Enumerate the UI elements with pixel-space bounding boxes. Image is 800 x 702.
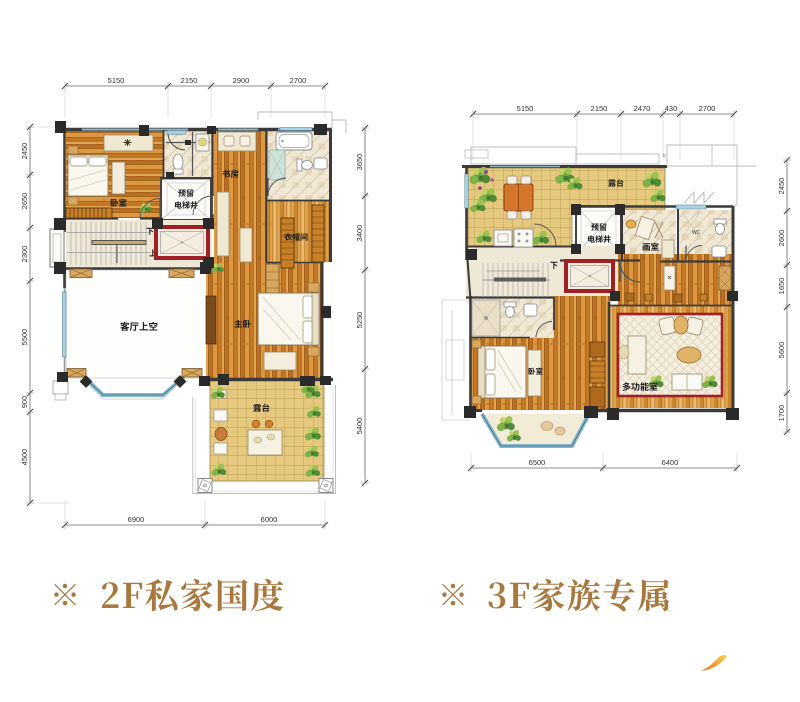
svg-text:6000: 6000 (261, 515, 278, 524)
svg-text:430: 430 (665, 104, 678, 113)
svg-text:2700: 2700 (290, 76, 307, 85)
svg-text:2600: 2600 (777, 230, 786, 247)
svg-text:4500: 4500 (20, 449, 29, 466)
svg-text:1650: 1650 (777, 278, 786, 295)
svg-text:2150: 2150 (591, 104, 608, 113)
svg-text:5500: 5500 (20, 329, 29, 346)
svg-text:6400: 6400 (662, 458, 679, 467)
svg-text:2150: 2150 (181, 76, 198, 85)
svg-text:5150: 5150 (108, 76, 125, 85)
svg-text:1700: 1700 (777, 405, 786, 422)
svg-text:2300: 2300 (20, 246, 29, 263)
svg-text:900: 900 (20, 396, 29, 409)
svg-text:2650: 2650 (20, 193, 29, 210)
svg-text:6500: 6500 (529, 458, 546, 467)
svg-text:b: b (663, 153, 666, 159)
svg-text:5250: 5250 (355, 312, 364, 329)
svg-text:3400: 3400 (355, 225, 364, 242)
svg-text:5600: 5600 (777, 342, 786, 359)
svg-text:2450: 2450 (20, 143, 29, 160)
svg-text:5400: 5400 (355, 418, 364, 435)
svg-text:5150: 5150 (517, 104, 534, 113)
svg-text:2900: 2900 (233, 76, 250, 85)
svg-text:6900: 6900 (128, 515, 145, 524)
svg-text:3650: 3650 (355, 154, 364, 171)
svg-text:2450: 2450 (777, 178, 786, 195)
svg-text:2700: 2700 (699, 104, 716, 113)
svg-text:2470: 2470 (634, 104, 651, 113)
svg-text:WC: WC (692, 230, 701, 236)
